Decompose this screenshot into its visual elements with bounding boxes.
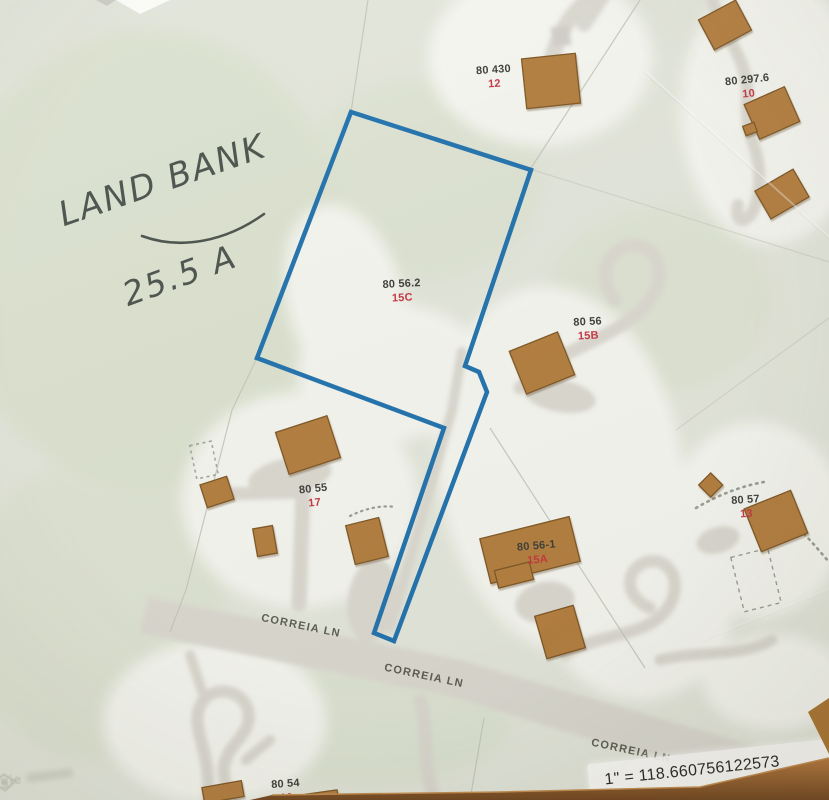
parcel-id: 80 56.2 [382,277,421,293]
parcel-label-80-56-2: 80 56.2 15C [382,277,421,306]
parcel-label-80-56-1: 80 56-1 15A [517,538,558,569]
lot-number: 13 [732,507,761,523]
parcel-id: 80 54 [271,777,300,793]
parcel-id: 80 430 [476,63,512,79]
parcel-label-80-297-6: 80 297.6 10 [724,72,771,104]
parcel-label-80-430: 80 430 12 [476,63,513,93]
parcel-label-80-57: 80 57 13 [731,493,761,522]
parcel-label-80-56: 80 56 15B [573,315,603,344]
parcel-label-80-54: 80 54 16 [271,777,301,800]
printed-map-photo: 80 430 12 80 297.6 10 80 56.2 15C 80 56 … [0,0,829,800]
parcel-id: 80 57 [731,493,760,509]
parcel-id: 80 56 [573,315,602,330]
building-80-54-b [305,790,338,800]
building-80-430 [522,53,581,108]
lot-number: 12 [477,77,513,93]
lot-number: 15C [383,291,422,307]
watermark-blurred-text [27,768,74,783]
building-80-55-shed [253,525,278,556]
parcel-label-80-55: 80 55 17 [298,482,329,512]
lot-number: 15B [574,329,603,344]
diamond-logo-icon [0,772,17,793]
